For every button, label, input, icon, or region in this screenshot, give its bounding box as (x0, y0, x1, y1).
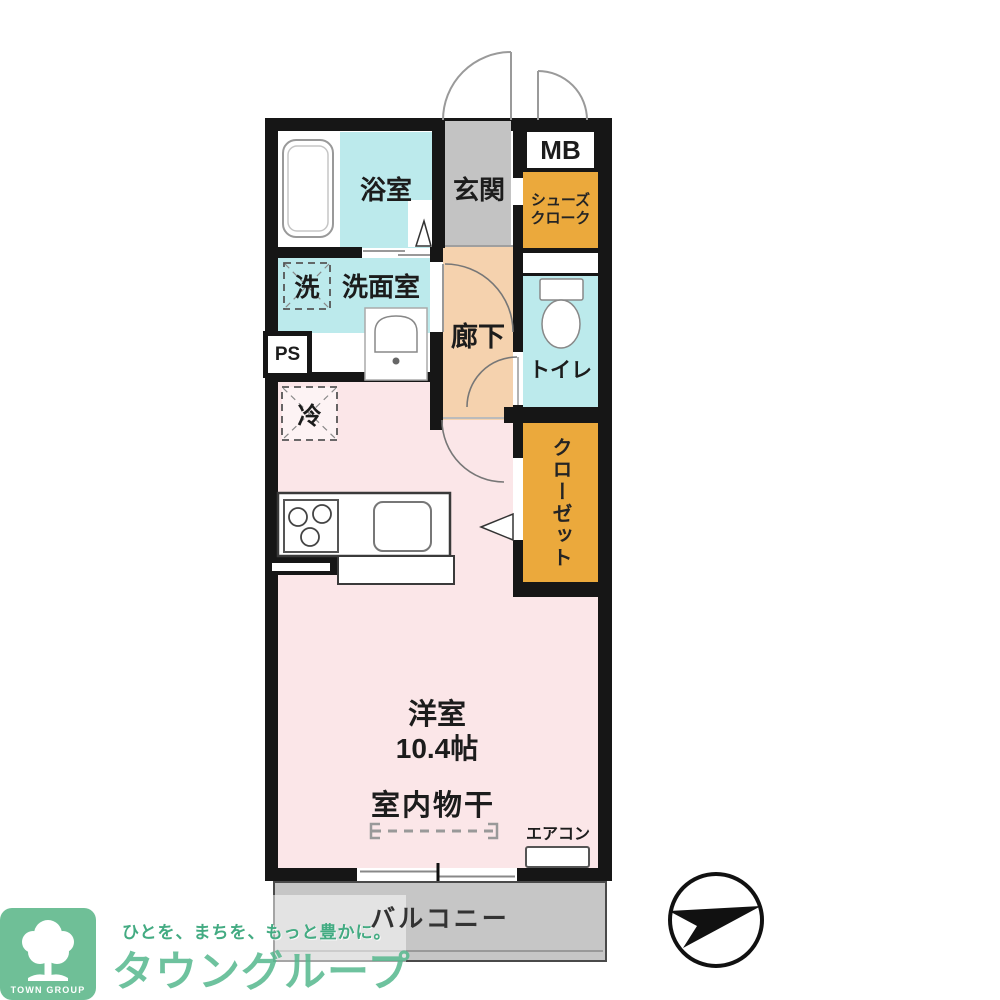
room-shoecloset-label: シューズクローク (523, 177, 598, 243)
room-door-arc (442, 418, 504, 482)
washer-space-label: 洗 (284, 263, 330, 309)
kitchen-sink-icon (374, 502, 431, 551)
room-main-label: 洋室 (357, 696, 517, 728)
brand-company-name: タウングループ (112, 938, 410, 999)
fridge-space-label: 冷 (281, 386, 338, 441)
entrance-door-arc (443, 52, 511, 120)
toilet-door-arc (467, 357, 518, 407)
room-bath-label: 浴室 (340, 174, 432, 202)
bath-door-icon (363, 221, 431, 255)
fixtures-overlay (0, 0, 1000, 1000)
toilet-icon (540, 279, 583, 348)
aircon-label: エアコン (518, 822, 598, 842)
floorplan-page: MB PS (0, 0, 1000, 1000)
room-toilet-label: トイレ (523, 356, 598, 382)
room-main-size-label: 10.4帖 (357, 731, 517, 763)
bathtub-icon (283, 140, 333, 237)
mb-door-arc (538, 71, 587, 120)
room-washroom-label: 洗面室 (330, 271, 432, 299)
town-group-tree-icon (0, 912, 96, 982)
stove-burners-icon (284, 500, 338, 552)
room-hallway-label: 廊下 (443, 319, 513, 349)
north-arrow-compass (660, 865, 775, 980)
town-group-badge-text: TOWN GROUP (0, 985, 96, 995)
closet-door-triangle (481, 514, 513, 540)
town-group-badge: TOWN GROUP (0, 908, 96, 1000)
room-entrance-label: 玄関 (445, 174, 513, 202)
washbasin-icon (365, 308, 427, 380)
room-closet-label: クローゼット (523, 423, 598, 582)
laundry-pole-icon (371, 824, 497, 838)
aircon-unit-box (525, 846, 590, 868)
indoor-drying-label: 室内物干 (347, 787, 519, 819)
